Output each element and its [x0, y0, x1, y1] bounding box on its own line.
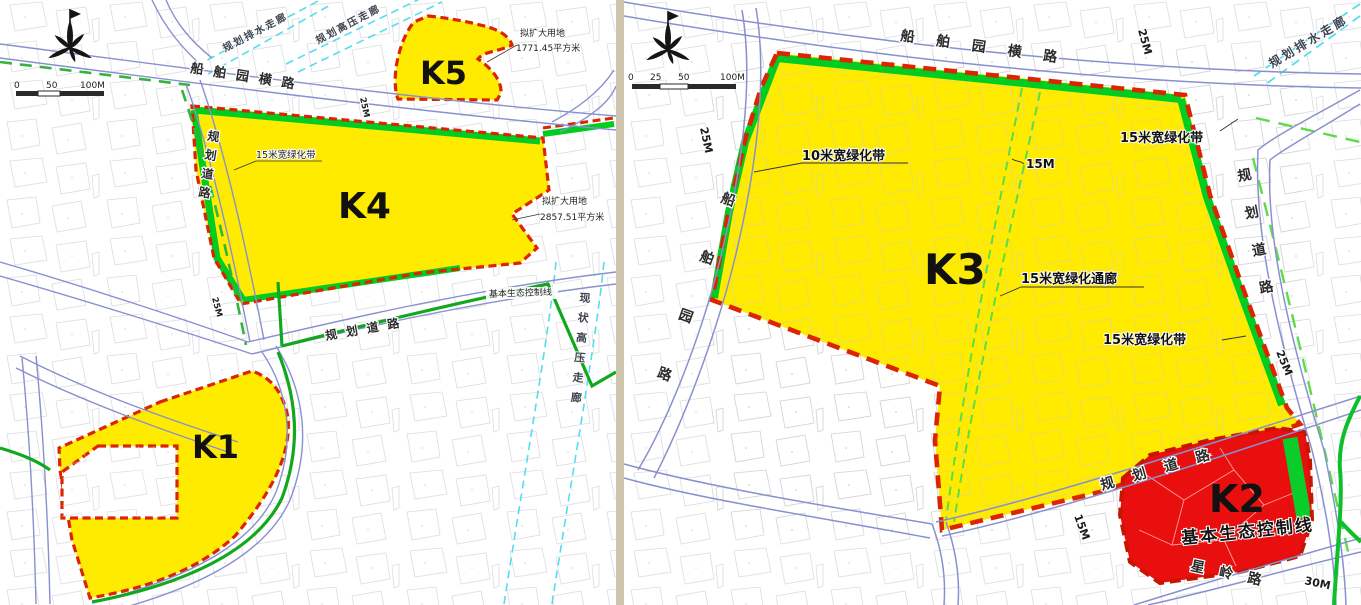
zone-k1-label: K1 [192, 428, 239, 466]
zone-k5-label: K5 [420, 54, 467, 92]
zone-k4-label: K4 [338, 186, 391, 227]
corridor-width-label: 15M [1026, 157, 1055, 171]
belt-15m-right-label: 15米宽绿化带 [1103, 332, 1186, 348]
panel-divider [616, 0, 624, 605]
scale-tick-100: 100M [80, 81, 105, 91]
k5-expansion-area: 1771.45平方米 [516, 42, 580, 54]
planning-maps: 0 50 100M 船舶园横路 25M 规划道路 25M 规划道路 规划排水走廊… [0, 0, 1361, 605]
zone-k1-notch-texture [62, 446, 177, 518]
scale-tick-100: 100M [720, 73, 745, 83]
scale-tick-50: 50 [678, 73, 690, 83]
scale-seg [632, 84, 660, 89]
zone-k2-label: K2 [1209, 477, 1265, 521]
scale-tick-0: 0 [628, 73, 634, 83]
corridor-15m-label: 15米宽绿化通廊 [1021, 271, 1117, 287]
right-map-panel: 0 25 50 100M 船舶园横路 25M 船舶园路 25M 规划道路 25M… [624, 0, 1361, 605]
scale-seg [60, 91, 104, 96]
belt-10m-label: 10米宽绿化带 [802, 148, 885, 164]
left-map-panel: 0 50 100M 船舶园横路 25M 规划道路 25M 规划道路 规划排水走廊… [0, 0, 616, 605]
right-map: 0 25 50 100M 船舶园横路 25M 船舶园路 25M 规划道路 25M… [624, 0, 1361, 605]
zone-k3-label: K3 [924, 245, 986, 294]
scale-tick-50: 50 [46, 81, 58, 91]
green-belt-label: 15米宽绿化带 [256, 149, 316, 161]
k4-expansion-area: 2857.51平方米 [540, 211, 604, 223]
scale-seg [38, 91, 60, 96]
k5-expansion-title: 拟扩大用地 [520, 27, 565, 39]
scale-tick-0: 0 [14, 81, 20, 91]
scale-seg [16, 91, 38, 96]
eco-line-label-left: 基本生态控制线 [486, 286, 558, 300]
scale-seg [660, 84, 688, 89]
belt-15m-topright-label: 15米宽绿化带 [1120, 130, 1203, 146]
scale-seg [688, 84, 736, 89]
scale-tick-25: 25 [650, 73, 661, 83]
left-map: 0 50 100M 船舶园横路 25M 规划道路 25M 规划道路 规划排水走廊… [0, 0, 616, 605]
k4-expansion-title: 拟扩大用地 [542, 195, 587, 207]
